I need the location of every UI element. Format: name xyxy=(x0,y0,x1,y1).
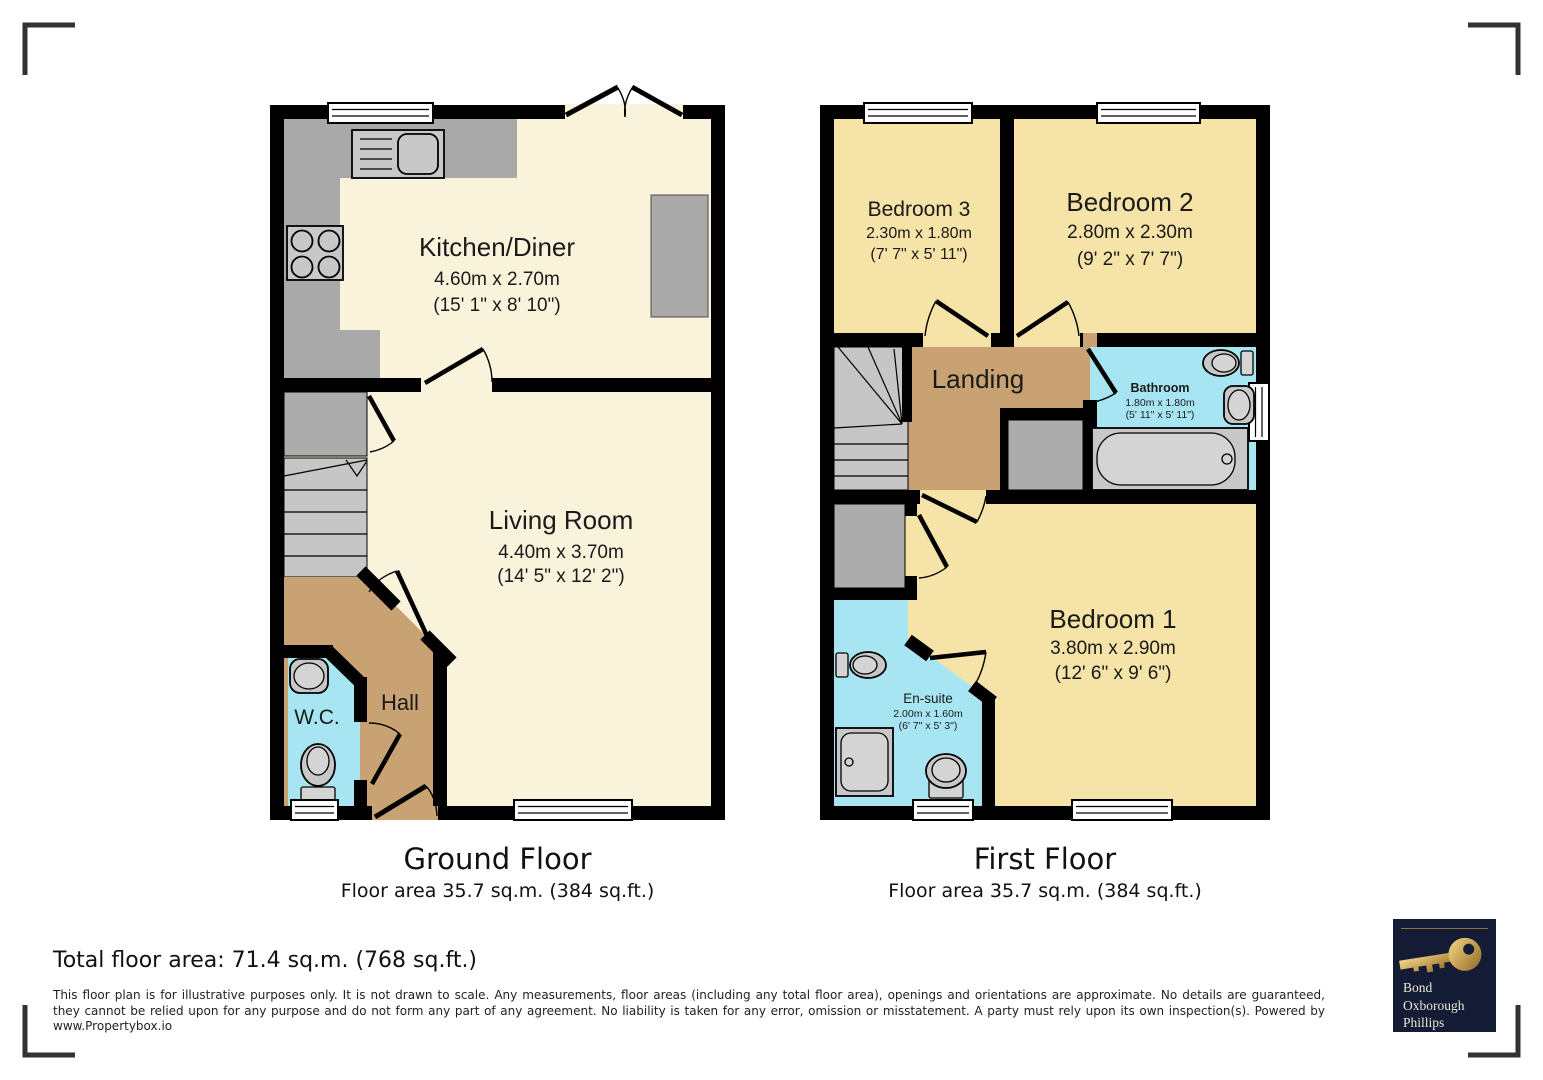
living-room-label: Living Room xyxy=(489,505,634,535)
logo-line-2: Oxborough xyxy=(1403,997,1465,1015)
bedroom1-imperial: (12' 6" x 9' 6") xyxy=(1055,663,1172,684)
shower-icon xyxy=(836,728,893,796)
logo-line-3: Phillips xyxy=(1403,1014,1465,1032)
bedroom3-label: Bedroom 3 xyxy=(868,198,971,221)
en-suite-label: En-suite xyxy=(903,691,953,706)
kitchen-diner-label: Kitchen/Diner xyxy=(419,232,575,262)
disclaimer-line-3: www.Propertybox.io xyxy=(53,1019,1325,1035)
bathroom-toilet-icon xyxy=(1203,350,1253,376)
en-suite-window xyxy=(913,800,973,820)
corner-top-right-icon xyxy=(1468,25,1518,75)
corner-marks xyxy=(25,25,1518,1055)
bedroom1-window xyxy=(1072,800,1172,820)
bedroom1-metric: 3.80m x 2.90m xyxy=(1050,638,1176,659)
patio-double-doors-icon xyxy=(565,87,683,120)
bedroom3-metric: 2.30m x 1.80m xyxy=(866,225,972,242)
floorplan-canvas: Kitchen/Diner 4.60m x 2.70m (15' 1" x 8'… xyxy=(0,0,1543,1080)
hob-icon xyxy=(287,226,343,280)
living-room-imperial: (14' 5" x 12' 2") xyxy=(497,566,624,587)
bathroom-sink-icon xyxy=(1224,386,1254,424)
kitchen-diner-metric: 4.60m x 2.70m xyxy=(434,269,560,290)
en-suite-imperial: (6' 7" x 5' 3") xyxy=(899,720,958,732)
wc-label: W.C. xyxy=(294,706,340,729)
wc-sink-icon xyxy=(290,659,328,693)
first-floor-area: Floor area 35.7 sq.m. (384 sq.ft.) xyxy=(820,880,1270,902)
living-room-window xyxy=(514,800,632,820)
disclaimer-line-1: This floor plan is for illustrative purp… xyxy=(53,988,1325,1004)
en-suite-metric: 2.00m x 1.60m xyxy=(893,708,963,720)
ff-cupboard-gray xyxy=(1008,420,1083,490)
bath-icon xyxy=(1092,428,1248,490)
hall-label: Hall xyxy=(381,690,419,715)
bathroom-label: Bathroom xyxy=(1130,381,1189,395)
bathroom-imperial: (5' 11" x 5' 11") xyxy=(1126,409,1195,421)
disclaimer: This floor plan is for illustrative purp… xyxy=(53,988,1325,1035)
landing-label: Landing xyxy=(932,364,1025,394)
bathroom-metric: 1.80m x 1.80m xyxy=(1125,397,1195,409)
kitchen-sink-icon xyxy=(352,130,444,178)
en-suite-sink-icon xyxy=(926,754,966,798)
total-floor-area: Total floor area: 71.4 sq.m. (768 sq.ft.… xyxy=(53,948,477,973)
en-suite-toilet-icon xyxy=(836,652,886,678)
agent-logo: Bond Oxborough Phillips xyxy=(1393,919,1496,1032)
ground-floor-area: Floor area 35.7 sq.m. (384 sq.ft.) xyxy=(270,880,725,902)
ground-floor-title: Ground Floor xyxy=(270,842,725,876)
bedroom2-metric: 2.80m x 2.30m xyxy=(1067,222,1193,243)
ff-stairs-icon xyxy=(834,347,908,490)
corner-top-left-icon xyxy=(25,25,75,75)
first-floor-plan: Bedroom 3 2.30m x 1.80m (7' 7" x 5' 11")… xyxy=(820,103,1270,820)
bedroom3-imperial: (7' 7" x 5' 11") xyxy=(870,246,967,263)
gf-stairs-icon xyxy=(284,458,367,577)
bedroom3-window xyxy=(864,103,972,123)
wc-toilet-icon xyxy=(301,744,335,800)
living-room-metric: 4.40m x 3.70m xyxy=(498,542,624,563)
gf-cupboard xyxy=(284,392,367,456)
bedroom2-window xyxy=(1097,103,1200,123)
disclaimer-line-2: they cannot be relied upon for any purpo… xyxy=(53,1004,1325,1020)
logo-gold-rule xyxy=(1401,928,1488,929)
bedroom2-label: Bedroom 2 xyxy=(1066,187,1193,217)
kitchen-window xyxy=(328,103,433,123)
bedroom2-imperial: (9' 2" x 7' 7") xyxy=(1077,249,1183,270)
bedroom1-label: Bedroom 1 xyxy=(1049,604,1176,634)
kitchen-diner-imperial: (15' 1" x 8' 10") xyxy=(433,295,560,316)
logo-line-1: Bond xyxy=(1403,979,1465,997)
logo-text: Bond Oxborough Phillips xyxy=(1403,979,1465,1032)
key-icon xyxy=(1393,931,1496,981)
ground-floor-plan: Kitchen/Diner 4.60m x 2.70m (15' 1" x 8'… xyxy=(270,87,725,820)
wc-window xyxy=(291,800,338,820)
ff-under-stairs-cupboard xyxy=(834,504,905,588)
first-floor-title: First Floor xyxy=(820,842,1270,876)
